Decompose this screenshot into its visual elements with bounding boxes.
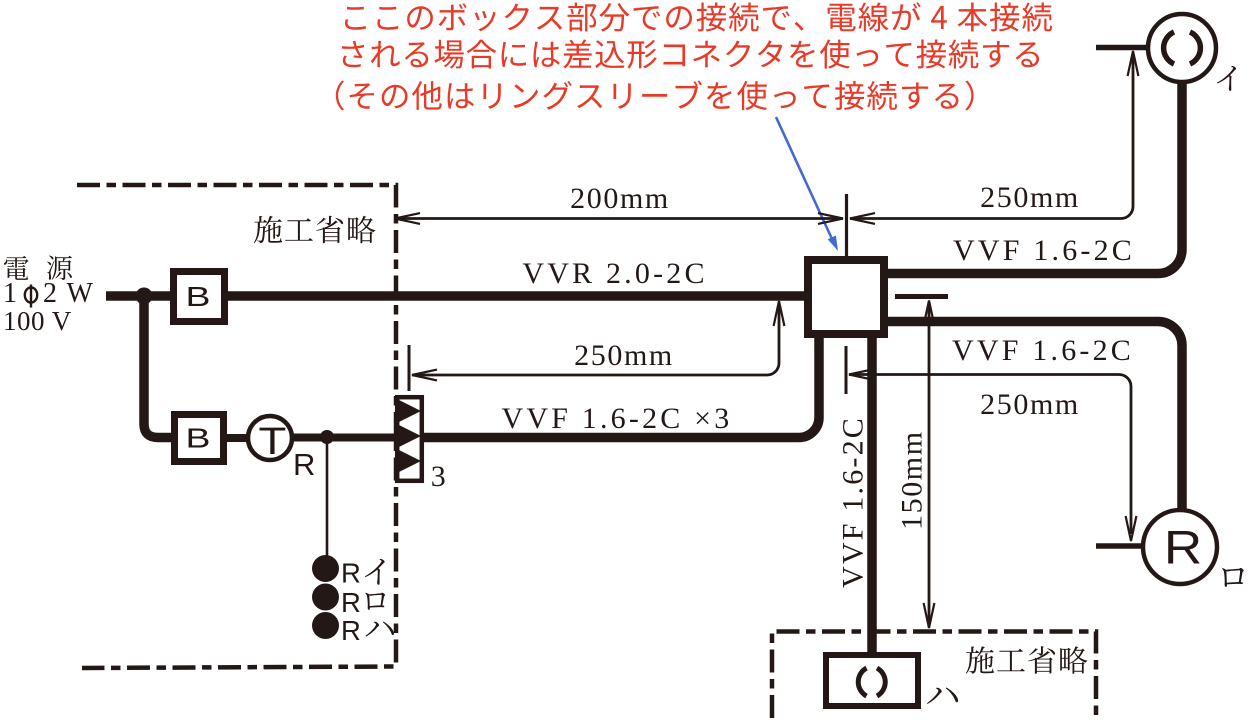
svg-text:VVF 1.6-2C ×3: VVF 1.6-2C ×3 [501,402,732,435]
svg-text:VVF 1.6-2C: VVF 1.6-2C [952,334,1134,367]
svg-text:B: B [186,281,211,312]
svg-text:100 V: 100 V [3,306,72,336]
svg-text:R: R [1164,521,1202,573]
svg-text:1: 1 [3,278,17,309]
svg-text:2 W: 2 W [43,278,94,309]
svg-text:R: R [341,558,361,589]
svg-text:200mm: 200mm [570,182,670,215]
svg-text:250mm: 250mm [574,339,674,372]
svg-text:VVF 1.6-2C: VVF 1.6-2C [953,234,1135,267]
svg-text:250mm: 250mm [980,181,1080,214]
svg-text:R: R [293,447,315,482]
svg-text:B: B [186,422,211,453]
svg-text:VVF 1.6-2C: VVF 1.6-2C [837,416,870,588]
svg-text:250mm: 250mm [980,388,1080,421]
svg-text:R: R [341,587,361,618]
svg-text:R: R [341,615,361,646]
svg-text:VVR 2.0-2C: VVR 2.0-2C [522,257,707,290]
svg-text:3: 3 [431,460,448,493]
svg-text:150mm: 150mm [896,430,929,530]
svg-text:T: T [259,420,287,463]
